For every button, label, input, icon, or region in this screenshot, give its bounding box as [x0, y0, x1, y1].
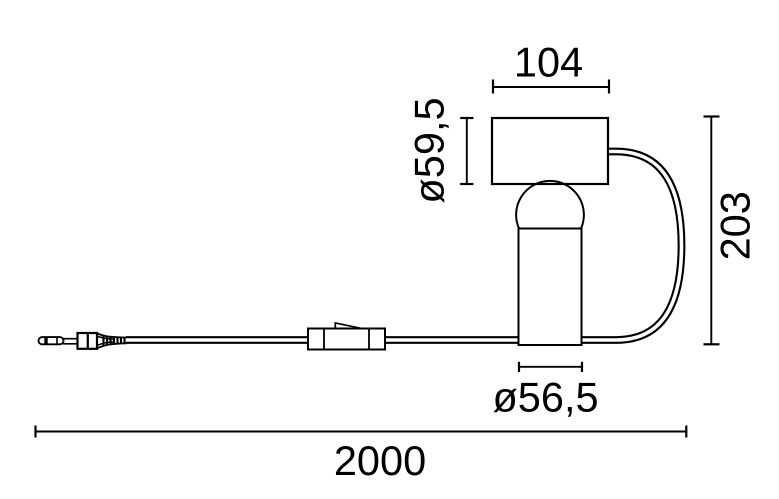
svg-text:ø59,5: ø59,5	[406, 97, 453, 203]
svg-text:2000: 2000	[334, 437, 426, 484]
svg-text:ø56,5: ø56,5	[492, 374, 598, 421]
svg-text:104: 104	[514, 39, 583, 86]
svg-text:203: 203	[712, 191, 759, 260]
